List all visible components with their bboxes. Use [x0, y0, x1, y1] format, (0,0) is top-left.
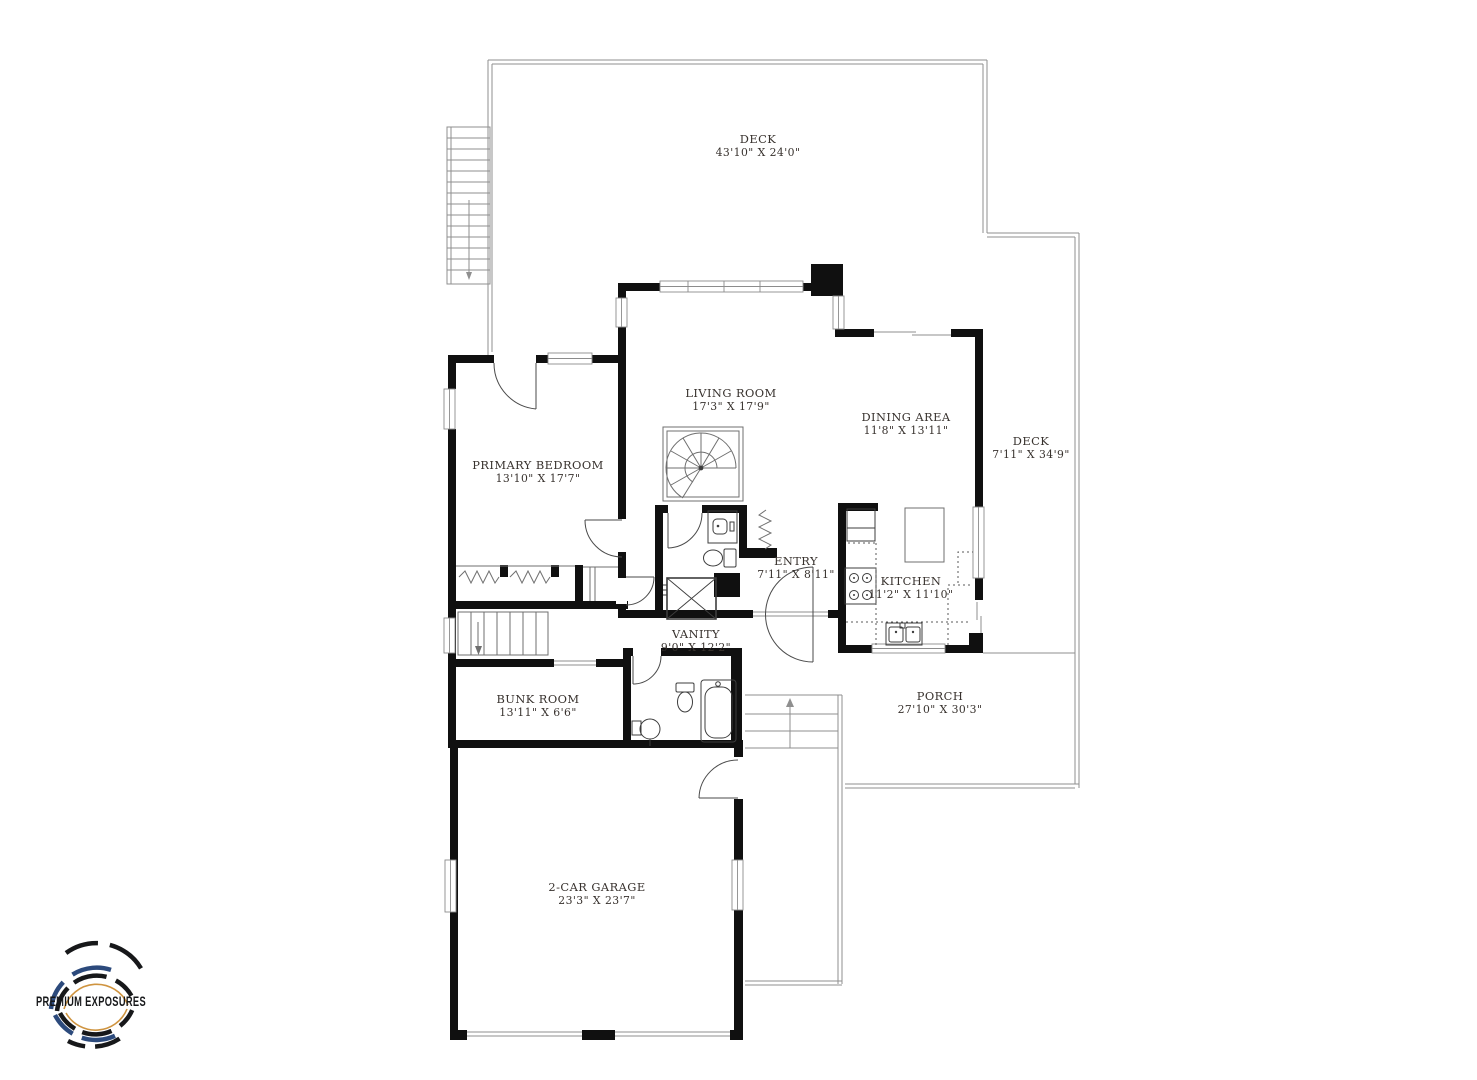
label-bunk-room: BUNK ROOM [496, 692, 579, 706]
door-powder-room [668, 503, 702, 548]
logo-text: PREMIUM EXPOSURES [36, 993, 146, 1009]
stairs-down-arrow [466, 272, 472, 280]
dims-vanity: 9'0" X 12'2" [661, 641, 731, 654]
slider-dining-deck [874, 328, 951, 337]
window-hall-left [444, 618, 455, 653]
window-garage-left [445, 860, 456, 912]
label-deck-right: DECK [1013, 434, 1050, 448]
exterior-stairs-top-left [447, 127, 490, 284]
dims-dining-area: 11'8" X 13'11" [864, 424, 949, 437]
label-garage: 2-CAR GARAGE [548, 880, 645, 894]
dims-porch: 27'10" X 30'3" [898, 703, 983, 716]
floor-plan: DECK 43'10" X 24'0" LIVING ROOM 17'3" X … [0, 0, 1477, 1080]
window-under-fireplace [833, 296, 844, 329]
window-garage-right [732, 860, 743, 910]
premium-exposures-logo: PREMIUM EXPOSURES [36, 943, 148, 1047]
powder-toilet-icon [704, 549, 737, 567]
door-garage-side [699, 757, 744, 799]
spiral-staircase [663, 427, 743, 501]
dims-deck-right: 7'11" X 34'9" [992, 448, 1070, 461]
powder-sink-vanity [708, 511, 737, 543]
window-bedroom-top [548, 353, 592, 364]
dims-primary-bedroom: 13'10" X 17'7" [496, 472, 581, 485]
entry-closet-rod-zigzag [759, 510, 771, 549]
dims-bunk-room: 13'11" X 6'6" [499, 706, 577, 719]
label-primary-bedroom: PRIMARY BEDROOM [472, 458, 603, 472]
kitchen-sink-icon [886, 623, 922, 645]
window-living-left [616, 298, 627, 327]
entry-steps-walkway [745, 695, 842, 985]
dims-entry: 7'11" X 8'11" [757, 568, 835, 581]
label-deck-top: DECK [740, 132, 777, 146]
door-bathroom [633, 646, 661, 684]
refrigerator-icon [847, 509, 875, 541]
kitchen-island [905, 508, 944, 562]
door-bedroom-hall [585, 519, 627, 557]
label-dining-area: DINING AREA [861, 410, 950, 424]
door-bedroom-deck [494, 353, 536, 409]
interior-stairs-down [458, 612, 548, 655]
door-hall-vanity [616, 577, 654, 605]
window-bedroom-left [444, 389, 455, 429]
opening-bunk-room [554, 658, 596, 668]
porch-bottom-outline [845, 784, 1079, 788]
dims-garage: 23'3" X 23'7" [558, 894, 636, 907]
steps-up-arrow [786, 698, 794, 707]
door-main-entry [753, 567, 828, 662]
fireplace [811, 264, 843, 296]
window-band-living-top [660, 281, 803, 292]
stairs-arrow-down [475, 646, 482, 655]
bath-toilet-icon [676, 683, 694, 712]
dims-deck-top: 43'10" X 24'0" [716, 146, 801, 159]
deck-right-outline [987, 233, 1079, 788]
closet-rod-zigzag-2 [510, 571, 550, 583]
deck-top-outline [488, 60, 987, 356]
label-porch: PORCH [917, 689, 963, 703]
closet-rod-zigzag-1 [459, 571, 499, 583]
slider-kitchen-deck [975, 600, 983, 633]
linen-closet [583, 567, 618, 601]
label-entry: ENTRY [774, 554, 818, 568]
window-kitchen-right [973, 507, 984, 578]
dims-living-room: 17'3" X 17'9" [692, 400, 770, 413]
plumbing-chase [714, 573, 740, 597]
deck-outlines [488, 60, 1079, 788]
label-vanity: VANITY [671, 627, 720, 641]
label-living-room: LIVING ROOM [685, 386, 776, 400]
label-kitchen: KITCHEN [881, 574, 942, 588]
dims-kitchen: 11'2" X 11'10" [869, 588, 954, 601]
bathtub-icon [701, 680, 736, 742]
